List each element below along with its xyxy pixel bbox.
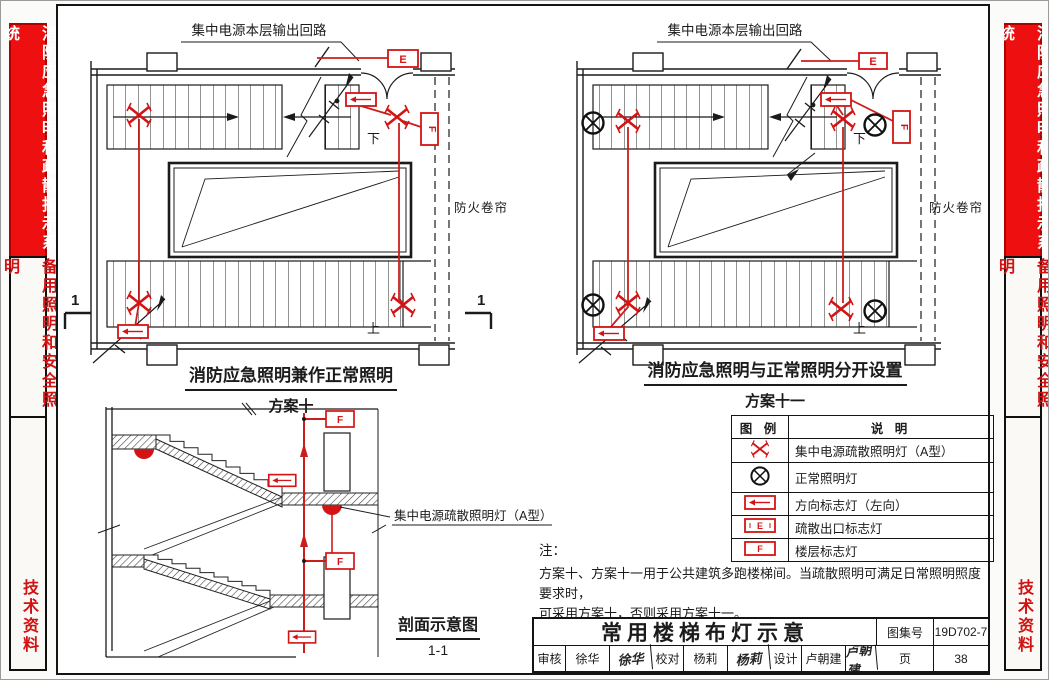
svg-text:E: E [757, 521, 763, 531]
emergency-lamp [322, 505, 342, 515]
atlas-number-value: 19D702-7 [934, 619, 988, 646]
review-name: 徐华 [566, 646, 610, 671]
proof-label: 校对 [652, 646, 684, 671]
left-sidebar: 消防应急照明和疏散指示系统 备用照明和安全照明 技术资料 [9, 23, 47, 671]
plan2-caption: 消防应急照明与正常照明分开设置 方案十一 [613, 356, 937, 411]
svg-text:E: E [399, 54, 406, 66]
design-signature: 卢朝建 [845, 645, 878, 673]
exit-sign-icon: E [744, 518, 776, 533]
design-label: 设计 [770, 646, 802, 671]
legend-symbol-header: 图 例 [732, 416, 789, 439]
legend-header-row: 图 例 说 明 [732, 416, 994, 439]
sidebar-technical-data-tab[interactable]: 技术资料 [1004, 416, 1042, 671]
circuit-label: 集中电源本层输出回路 [668, 23, 803, 38]
emergency-lamp [134, 449, 154, 459]
svg-text:E: E [869, 56, 876, 68]
svg-text:F: F [337, 415, 343, 426]
section-caption: 剖面示意图 1-1 [373, 611, 503, 658]
legend-row: E 疏散出口标志灯 [732, 516, 994, 539]
atlas-number-label: 图集号 [877, 619, 934, 646]
exit-sign: E [388, 50, 418, 67]
page-number: 38 [934, 646, 988, 671]
proof-signature: 杨莉 [727, 644, 771, 673]
legend-desc: 集中电源疏散照明灯（A型） [789, 439, 994, 463]
legend-table: 图 例 说 明 集中电源疏散照明灯（A型） 正常照明灯 [731, 415, 994, 562]
notes-line: 方案十、方案十一用于公共建筑多跑楼梯间。当疏散照明可满足日常照明照度要求时， [539, 564, 991, 604]
sidebar-backup-lighting-tab[interactable]: 备用照明和安全照明 [9, 256, 47, 418]
legend-desc: 方向标志灯（左向） [789, 493, 994, 516]
legend-row: 正常照明灯 [732, 463, 994, 493]
legend-desc-header: 说 明 [789, 416, 994, 439]
circuit-label: 集中电源本层输出回路 [192, 23, 327, 38]
svg-text:F: F [337, 557, 343, 568]
legend-desc: 正常照明灯 [789, 463, 994, 493]
floor-sign: F [421, 113, 438, 145]
sidebar-backup-lighting-tab[interactable]: 备用照明和安全照明 [1004, 256, 1042, 418]
atlas-page: 下 上 消防应急照明和疏散指示系统 备用照明和安全照明 技术资料 [0, 0, 1049, 680]
sidebar-system-tab[interactable]: 消防应急照明和疏散指示系统 [9, 23, 47, 258]
review-label: 审核 [534, 646, 566, 671]
plan2-scheme: 方案十一 [613, 390, 937, 411]
svg-text:1: 1 [71, 292, 79, 309]
normal-lamp-icon [748, 464, 772, 488]
notes-label: 注： [539, 541, 991, 562]
legend-row: 集中电源疏散照明灯（A型） [732, 439, 994, 463]
sidebar-system-tab[interactable]: 消防应急照明和疏散指示系统 [1004, 23, 1042, 258]
page-label: 页 [877, 646, 934, 671]
plan2-drawing: 集中电源本层输出回路 E F [549, 11, 979, 367]
plan1-title: 消防应急照明兼作正常照明 [185, 361, 397, 391]
exit-sign: E [859, 53, 887, 69]
proof-name: 杨莉 [684, 646, 728, 671]
svg-text:F: F [898, 124, 909, 130]
floor-sign: F [893, 111, 910, 143]
emergency-lamp-icon [746, 440, 774, 458]
review-signature: 徐华 [609, 644, 653, 673]
section-lamp-label: 集中电源疏散照明灯（A型） [394, 508, 552, 523]
notes: 注： 方案十、方案十一用于公共建筑多跑楼梯间。当疏散照明可满足日常照明照度要求时… [539, 541, 991, 624]
floor-sign: F [326, 553, 354, 569]
sidebar-technical-data-tab[interactable]: 技术资料 [9, 416, 47, 671]
section-caption-number: 1-1 [373, 642, 503, 658]
fire-shutter-label: 防火卷帘 [929, 197, 983, 216]
right-sidebar: 消防应急照明和疏散指示系统 备用照明和安全照明 技术资料 [1004, 23, 1042, 671]
svg-text:F: F [426, 126, 437, 132]
section-caption-title: 剖面示意图 [396, 611, 480, 640]
design-name: 卢朝建 [802, 646, 846, 671]
svg-text:1: 1 [477, 292, 485, 309]
plan1-drawing: 集中电源本层输出回路 E F [63, 11, 493, 367]
direction-sign-icon [744, 495, 776, 510]
plan2-title: 消防应急照明与正常照明分开设置 [644, 356, 907, 386]
legend-desc: 疏散出口标志灯 [789, 516, 994, 539]
legend-row: 方向标志灯（左向） [732, 493, 994, 516]
title-block: 常用楼梯布灯示意 图集号 19D702-7 审核 徐华 徐华 校对 杨莉 杨莉 … [532, 617, 990, 673]
drawing-title: 常用楼梯布灯示意 [534, 619, 877, 646]
fire-shutter-label: 防火卷帘 [454, 197, 508, 216]
floor-sign: F [326, 411, 354, 427]
